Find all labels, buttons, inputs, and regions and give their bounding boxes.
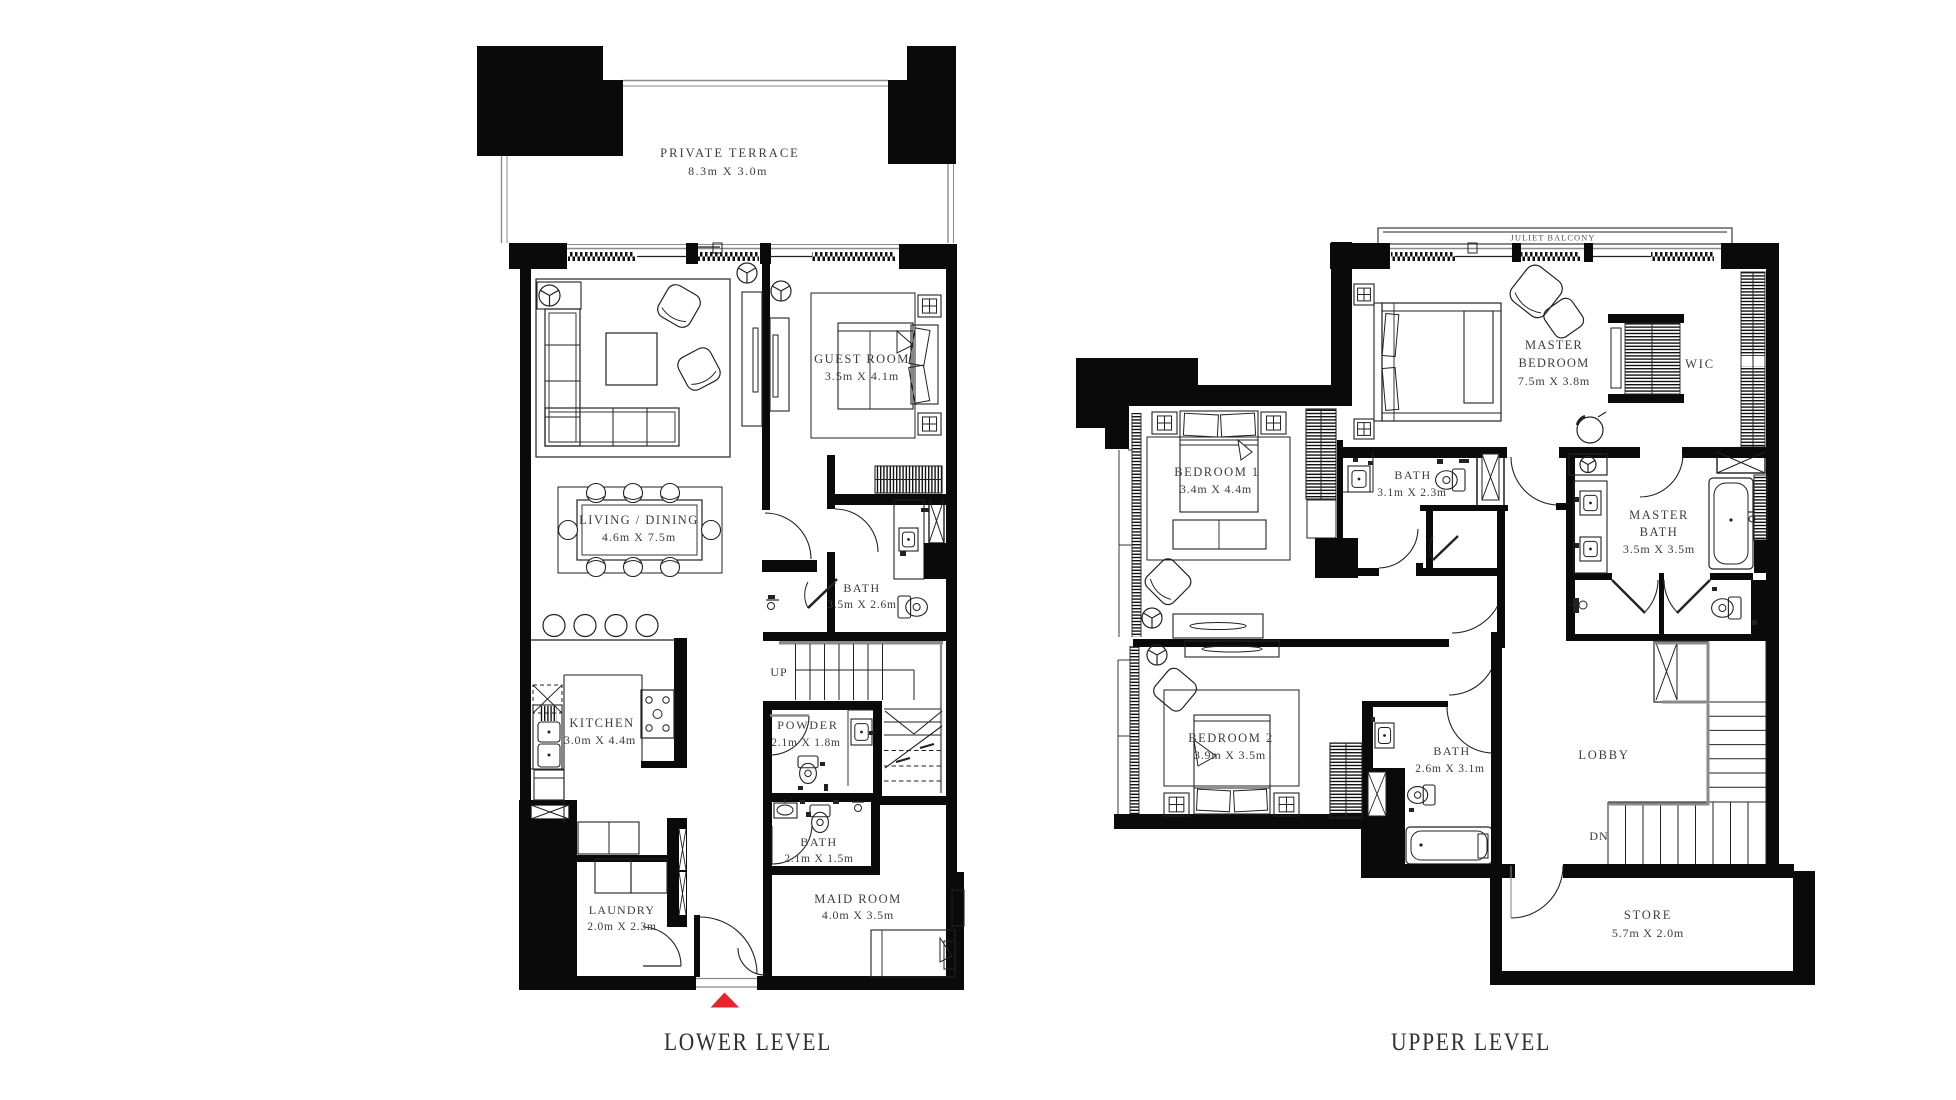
svg-text:3.9m X 3.5m: 3.9m X 3.5m	[1194, 748, 1266, 762]
svg-text:BATH: BATH	[1433, 744, 1470, 758]
svg-text:POWDER: POWDER	[777, 718, 838, 732]
svg-text:3.4m X 4.4m: 3.4m X 4.4m	[1180, 482, 1252, 496]
svg-text:3.5m X 3.5m: 3.5m X 3.5m	[1623, 542, 1695, 556]
svg-text:2.6m X 3.1m: 2.6m X 3.1m	[1415, 763, 1485, 775]
svg-text:MASTER: MASTER	[1525, 338, 1583, 352]
svg-text:MAID ROOM: MAID ROOM	[814, 892, 901, 906]
svg-text:GUEST ROOM: GUEST ROOM	[814, 352, 910, 366]
svg-text:3.5m X 4.1m: 3.5m X 4.1m	[825, 369, 899, 383]
svg-text:BEDROOM 2: BEDROOM 2	[1188, 731, 1273, 745]
svg-text:3.0m X 4.4m: 3.0m X 4.4m	[564, 733, 636, 747]
svg-text:LIVING / DINING: LIVING / DINING	[579, 513, 699, 527]
svg-text:7.5m X 3.8m: 7.5m X 3.8m	[1518, 374, 1590, 388]
svg-text:2.0m X 2.3m: 2.0m X 2.3m	[587, 921, 657, 933]
svg-text:WIC: WIC	[1685, 357, 1715, 371]
svg-text:LOWER LEVEL: LOWER LEVEL	[664, 1029, 832, 1056]
svg-text:3.5m X 2.6m: 3.5m X 2.6m	[827, 599, 897, 611]
svg-text:BATH: BATH	[1640, 525, 1679, 539]
svg-text:BATH: BATH	[800, 835, 837, 849]
svg-text:4.0m X 3.5m: 4.0m X 3.5m	[822, 908, 894, 922]
svg-text:8.3m X 3.0m: 8.3m X 3.0m	[688, 164, 768, 178]
svg-text:JULIET BALCONY: JULIET BALCONY	[1511, 233, 1596, 243]
svg-text:BEDROOM: BEDROOM	[1519, 356, 1590, 370]
svg-text:3.1m X 2.3m: 3.1m X 2.3m	[1377, 487, 1447, 499]
svg-text:2.1m X 1.5m: 2.1m X 1.5m	[784, 853, 854, 865]
svg-text:MASTER: MASTER	[1629, 508, 1689, 522]
svg-text:PRIVATE TERRACE: PRIVATE TERRACE	[660, 146, 800, 160]
svg-text:LAUNDRY: LAUNDRY	[589, 903, 655, 917]
svg-text:LOBBY: LOBBY	[1578, 748, 1629, 762]
svg-text:4.6m X 7.5m: 4.6m X 7.5m	[602, 530, 676, 544]
svg-text:BEDROOM 1: BEDROOM 1	[1174, 465, 1259, 479]
svg-text:5.7m X 2.0m: 5.7m X 2.0m	[1612, 926, 1684, 940]
svg-text:DN: DN	[1589, 829, 1608, 843]
svg-text:UP: UP	[770, 665, 787, 679]
svg-text:2.1m X 1.8m: 2.1m X 1.8m	[771, 737, 841, 749]
svg-text:BATH: BATH	[1394, 468, 1431, 482]
svg-text:BATH: BATH	[843, 581, 880, 595]
svg-text:KITCHEN: KITCHEN	[569, 716, 634, 730]
svg-text:STORE: STORE	[1624, 908, 1672, 922]
svg-text:UPPER LEVEL: UPPER LEVEL	[1391, 1029, 1551, 1056]
